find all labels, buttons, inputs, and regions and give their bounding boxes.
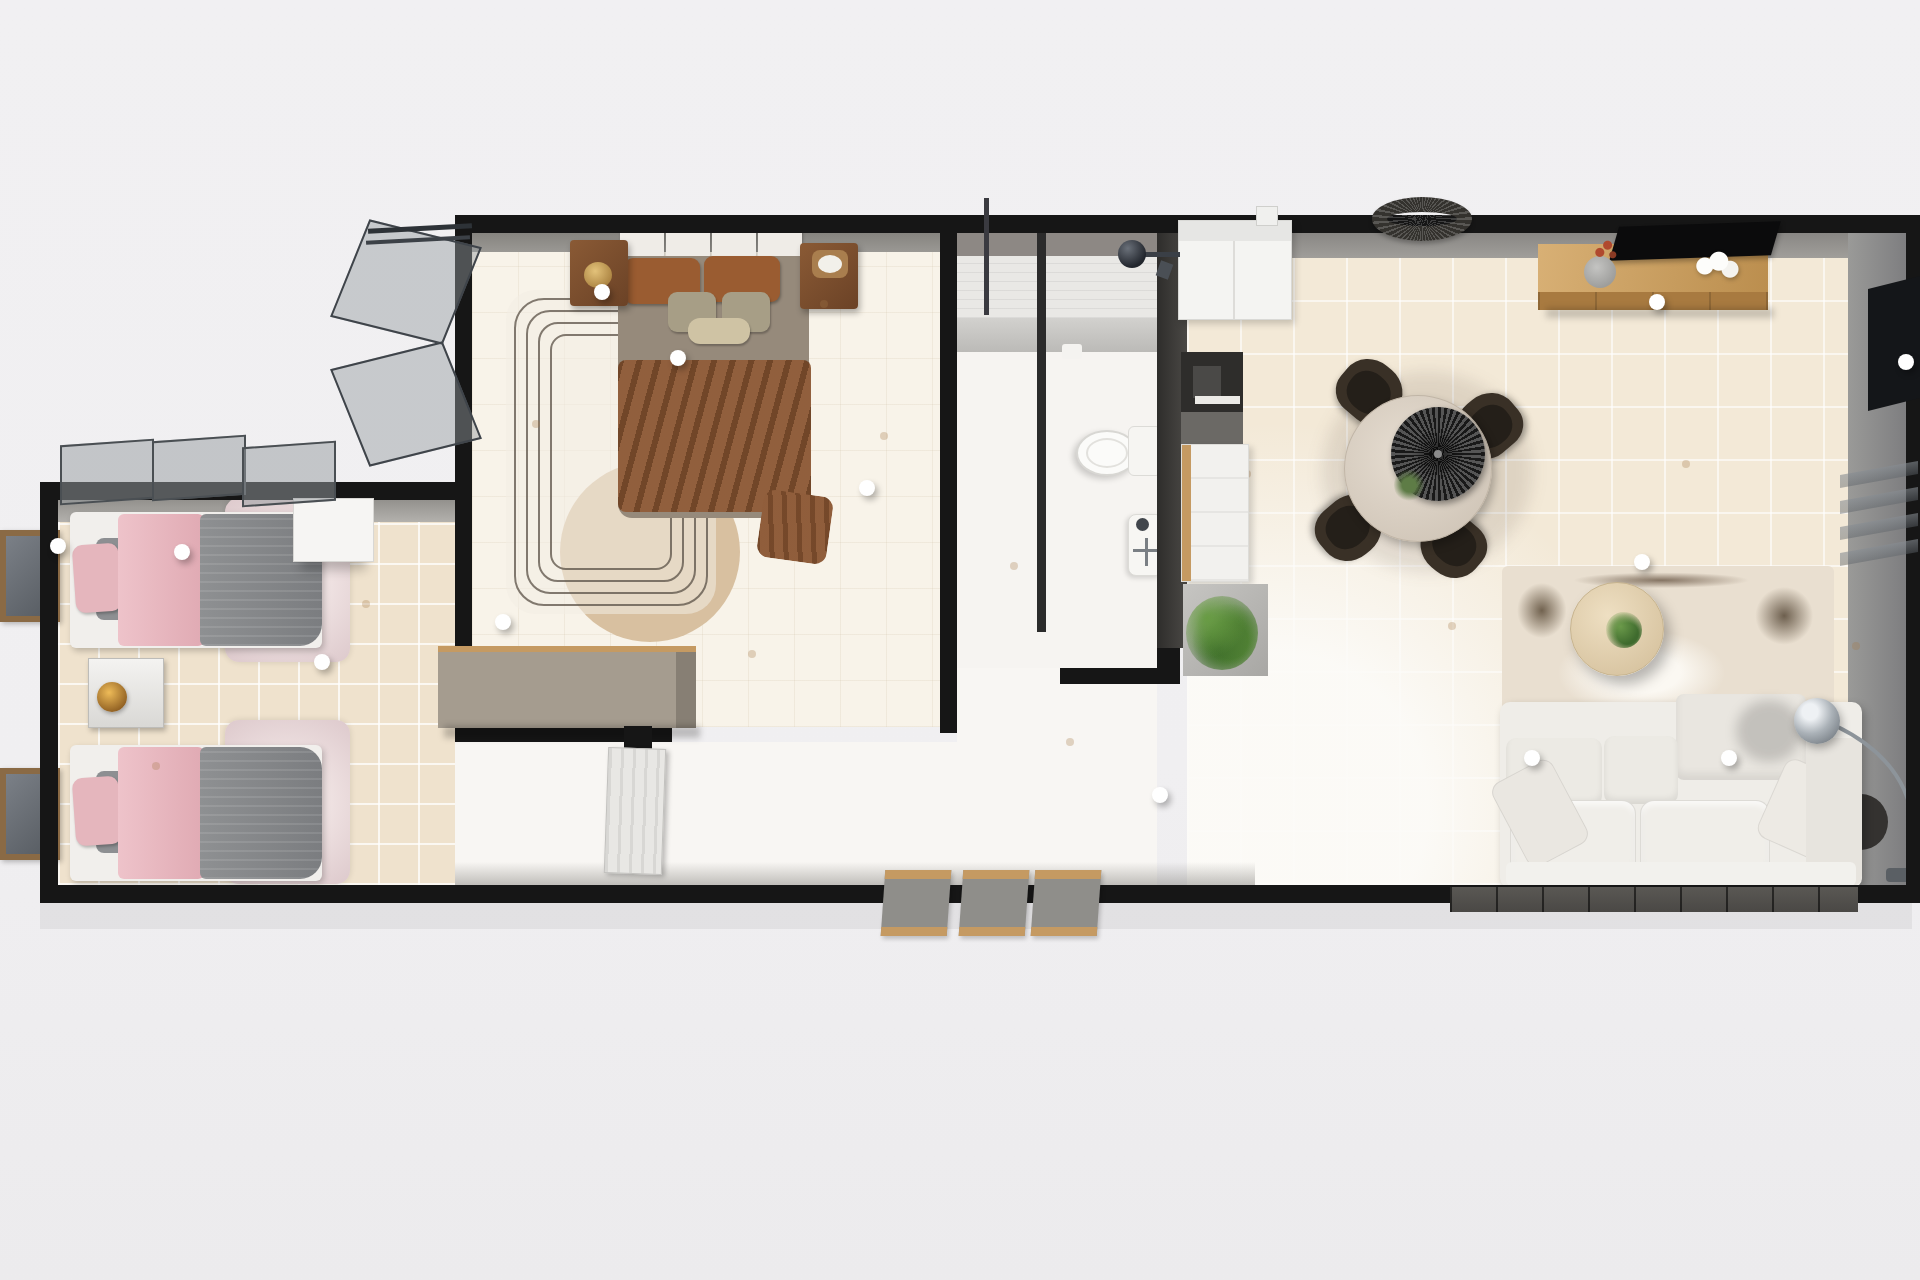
interior-door — [604, 747, 666, 875]
ceiling-light — [1898, 354, 1914, 370]
bottom-wall-inner-shadow — [455, 862, 1255, 886]
floor-speck — [1852, 642, 1860, 650]
twin-bed-2-duvet — [118, 747, 204, 879]
floor-speck — [362, 600, 370, 608]
basin-faucet — [1136, 518, 1149, 531]
twin-bed-1-duvet — [118, 514, 204, 646]
shower-grab-bar — [984, 198, 989, 315]
ceiling-light — [859, 480, 875, 496]
shower-drain-strip — [957, 318, 1157, 352]
floor-speck — [1066, 738, 1074, 746]
coral-stems — [1592, 238, 1618, 262]
floor-speck — [1682, 460, 1690, 468]
ceiling-light — [1152, 787, 1168, 803]
kitchen-plant — [1186, 596, 1258, 670]
blanket-drape — [756, 488, 835, 565]
floor-speck — [1448, 622, 1456, 630]
floor-plan-canvas — [0, 0, 1920, 1280]
entry-step-1 — [881, 870, 952, 936]
twin-window-sash-2 — [152, 435, 246, 502]
twin-table-lamp — [97, 682, 127, 712]
ceiling-light — [50, 538, 66, 554]
sofa-back-cushion — [1604, 736, 1678, 804]
entry-step-3 — [1031, 870, 1102, 936]
ceiling-light — [1524, 750, 1540, 766]
floor-speck — [748, 650, 756, 658]
cooktop-unit — [1181, 352, 1243, 416]
ceiling-light — [1721, 750, 1737, 766]
twin-bed-2-blanket — [200, 747, 322, 879]
basket-contents — [818, 255, 842, 273]
white-coral-decor — [1688, 250, 1744, 282]
shower-shelf-item — [1062, 344, 1082, 359]
twin-bed-2 — [70, 745, 322, 881]
ceiling-light — [1634, 554, 1650, 570]
coffee-table-plant — [1606, 612, 1642, 648]
ceiling-light — [314, 654, 330, 670]
wall-bath-left — [940, 215, 957, 733]
lamp-shadow — [1736, 700, 1802, 762]
floor-speck — [820, 300, 828, 308]
table-plant-sprig — [1394, 468, 1424, 502]
dark-wall-panel — [1868, 275, 1920, 411]
entry-step-2 — [959, 870, 1030, 936]
glass-shelf-unit — [1840, 461, 1918, 587]
deck-boards — [1450, 887, 1858, 912]
toilet-seat — [1086, 438, 1128, 468]
rust-blanket — [618, 360, 811, 512]
ceiling-light — [495, 614, 511, 630]
basin-handle-v — [1145, 538, 1148, 566]
floor-speck — [152, 762, 160, 770]
shower-head-icon — [1118, 240, 1146, 268]
cooktop-shelf — [1181, 412, 1243, 444]
arc-floor-lamp — [1794, 698, 1840, 744]
twin-wardrobe-shelf — [293, 498, 374, 562]
twin-bed-2-pillow — [72, 775, 123, 846]
floor-speck — [880, 432, 888, 440]
double-bed — [615, 218, 812, 518]
floor-speck — [532, 420, 540, 428]
kitchen-counter — [1181, 444, 1249, 582]
twin-bed-1-pillow — [72, 542, 123, 613]
shower-arm — [1144, 252, 1180, 257]
sofa-front-rail — [1506, 862, 1856, 886]
floor-speck — [1010, 562, 1018, 570]
fridge — [1178, 220, 1292, 320]
shower-glass-screen — [1037, 233, 1046, 632]
lumbar-pillow — [688, 318, 750, 344]
ceiling-light — [594, 284, 610, 300]
rattan-pendant-light-icon — [1372, 197, 1472, 241]
twin-window-sash-1 — [60, 439, 154, 506]
ceiling-light — [1649, 294, 1665, 310]
ceiling-light — [670, 350, 686, 366]
ceiling-light — [174, 544, 190, 560]
twin-window-sash-3 — [242, 441, 336, 508]
dresser — [438, 646, 696, 730]
twin-bed-1 — [70, 512, 322, 648]
fridge-handle — [1256, 206, 1278, 226]
